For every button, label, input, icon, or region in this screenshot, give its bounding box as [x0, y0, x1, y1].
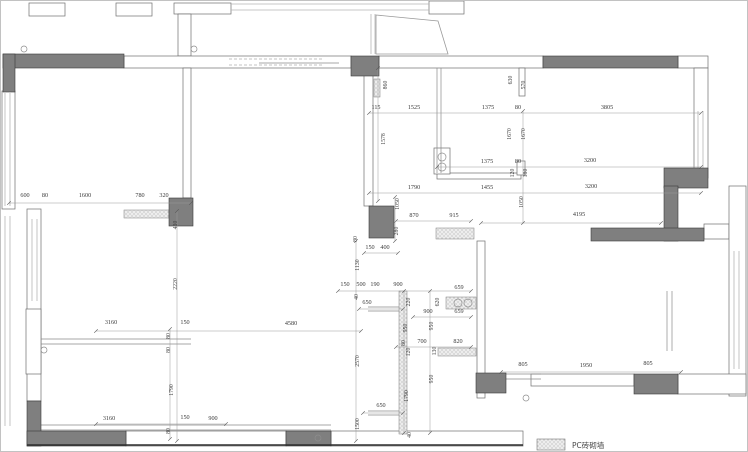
wall-solid [476, 373, 506, 393]
dimension-label: 3200 [585, 183, 597, 190]
wall-segment [678, 56, 708, 68]
dimension-label: 115 [371, 104, 380, 111]
dimension-label-vertical: 80 [166, 347, 172, 353]
dimension-label: 150 [180, 319, 189, 326]
dimension-label-vertical: 180 [523, 169, 529, 178]
dimension-label: 80 [42, 192, 48, 199]
dimension-label: 150 [340, 281, 349, 288]
floor-plan: 6008016007803201151525137580380513758032… [0, 0, 748, 452]
dimension-label-vertical: 80 [166, 428, 172, 434]
dimension-label: 3805 [601, 104, 613, 111]
dimension-label-vertical: 950 [429, 375, 435, 384]
wall-segment [26, 309, 41, 374]
wall-segment [331, 431, 523, 446]
wall-segment [694, 68, 708, 178]
dimension-label: 805 [518, 361, 527, 368]
dimension-label: 780 [135, 192, 144, 199]
dimension-label-vertical: 280 [394, 227, 400, 236]
dimension-label: 4580 [285, 320, 297, 327]
dimension-label-vertical: 630 [508, 76, 514, 85]
legend-hatch-swatch [537, 439, 565, 450]
wall-solid [3, 54, 124, 68]
dimension-label: 80 [515, 104, 521, 111]
dimension-label: 700 [417, 338, 426, 345]
dimension-label-vertical: 620 [435, 298, 441, 307]
dimension-label: 659 [454, 308, 463, 315]
wall-segment [429, 1, 464, 14]
dimension-label: 3160 [105, 319, 117, 326]
dimension-label: 1790 [408, 184, 420, 191]
wall-segment [29, 3, 65, 16]
dimension-label: 150 [180, 414, 189, 421]
new-brick-wall-hatch [438, 348, 476, 356]
fixture-circle [41, 347, 47, 353]
wall-solid [591, 228, 704, 241]
wall-solid [543, 56, 678, 68]
dimension-label: 80 [515, 158, 521, 165]
wall-segment [729, 186, 746, 396]
dimension-label: 805 [643, 360, 652, 367]
dimension-label-vertical: 2570 [355, 355, 361, 367]
wall-solid [664, 168, 708, 188]
dimension-label: 1950 [580, 362, 592, 369]
wall-solid [369, 206, 394, 238]
wall-segment [2, 91, 15, 209]
dimension-label-vertical: 1050 [395, 198, 401, 210]
new-brick-wall-hatch [374, 79, 380, 97]
dimension-label: 915 [449, 212, 458, 219]
wall-solid [351, 56, 379, 76]
dimension-label-vertical: 130 [432, 347, 438, 356]
dimension-label: 650 [376, 402, 385, 409]
dimension-label: 3200 [584, 157, 596, 164]
dimension-label-vertical: 40 [407, 432, 413, 438]
dimension-label: 650 [362, 299, 371, 306]
dimension-label: 1600 [79, 192, 91, 199]
dimension-label-vertical: 1130 [355, 259, 361, 270]
dimension-label: 820 [453, 338, 462, 345]
dimension-label: 320 [159, 192, 168, 199]
legend-label: PC砖砌墙 [572, 440, 605, 450]
dimension-label-vertical: 220 [406, 298, 412, 307]
wall-segment [126, 431, 286, 446]
dimension-label-vertical: 1050 [519, 196, 525, 208]
dimension-label: 1455 [481, 184, 493, 191]
dimension-label: 1375 [482, 104, 494, 111]
wall-segment [178, 14, 191, 56]
wall-segment [116, 3, 152, 16]
dimension-label: 659 [454, 284, 463, 291]
dimension-label-vertical: 860 [383, 81, 389, 90]
dimension-label-vertical: 1670 [521, 128, 527, 140]
dimension-label-vertical: 1790 [404, 390, 410, 402]
dimension-label-vertical: 80 [166, 333, 172, 339]
wall-segment [183, 68, 191, 198]
legend: PC砖砌墙 [537, 439, 605, 450]
dimension-label-vertical: 1790 [169, 384, 175, 396]
dimension-label: 900 [423, 308, 432, 315]
dimension-label-vertical: 40 [354, 294, 360, 300]
wall-segment [124, 56, 351, 68]
dimension-label-vertical: 1578 [381, 133, 387, 145]
dimension-label: 150 [365, 244, 374, 251]
dimension-label: 3160 [103, 415, 115, 422]
wall-segment [704, 224, 729, 239]
dimension-label-vertical: 120 [406, 348, 412, 357]
dimension-label-vertical: 120 [510, 169, 516, 178]
wall-solid [634, 374, 678, 394]
dimension-label: 900 [208, 415, 217, 422]
balcony-outline [376, 15, 448, 54]
wall-segment [531, 374, 634, 386]
dimension-label-vertical: 80 [401, 340, 407, 346]
dimension-label: 600 [20, 192, 29, 199]
wall-segment [174, 3, 231, 14]
dimension-label: 870 [409, 212, 418, 219]
fixture-circle [21, 46, 27, 52]
dimension-label: 500 [356, 281, 365, 288]
plan-geometry [2, 1, 746, 446]
dimension-label-vertical: 950 [429, 322, 435, 331]
dimension-label-vertical: 570 [521, 81, 527, 90]
fixture-circle [191, 46, 197, 52]
dimension-label: 4195 [573, 211, 585, 218]
wall-solid [286, 431, 331, 446]
dimension-label-vertical: 950 [403, 324, 409, 333]
dimension-label: 190 [370, 281, 379, 288]
dimension-label: 900 [393, 281, 402, 288]
fixture-circle [523, 395, 529, 401]
dimension-label-vertical: 1500 [355, 418, 361, 430]
wall-solid [27, 431, 126, 446]
dimension-label: 1375 [481, 158, 493, 165]
wall-segment [379, 56, 543, 68]
new-brick-wall-hatch [399, 291, 407, 434]
new-brick-wall-hatch [436, 228, 474, 239]
dimension-label-vertical: 2220 [173, 278, 179, 290]
dimension-label: 400 [380, 244, 389, 251]
wall-solid [3, 54, 15, 92]
wall-segment [678, 374, 746, 394]
new-brick-wall-hatch [124, 210, 169, 218]
dimension-label-vertical: 430 [173, 221, 179, 230]
wall-segment [364, 68, 373, 206]
dimension-label: 1525 [408, 104, 420, 111]
dimension-label-vertical: 1670 [507, 128, 513, 140]
floor-plan-canvas: 6008016007803201151525137580380513758032… [1, 1, 748, 452]
dimension-label-vertical: 80 [353, 236, 359, 242]
